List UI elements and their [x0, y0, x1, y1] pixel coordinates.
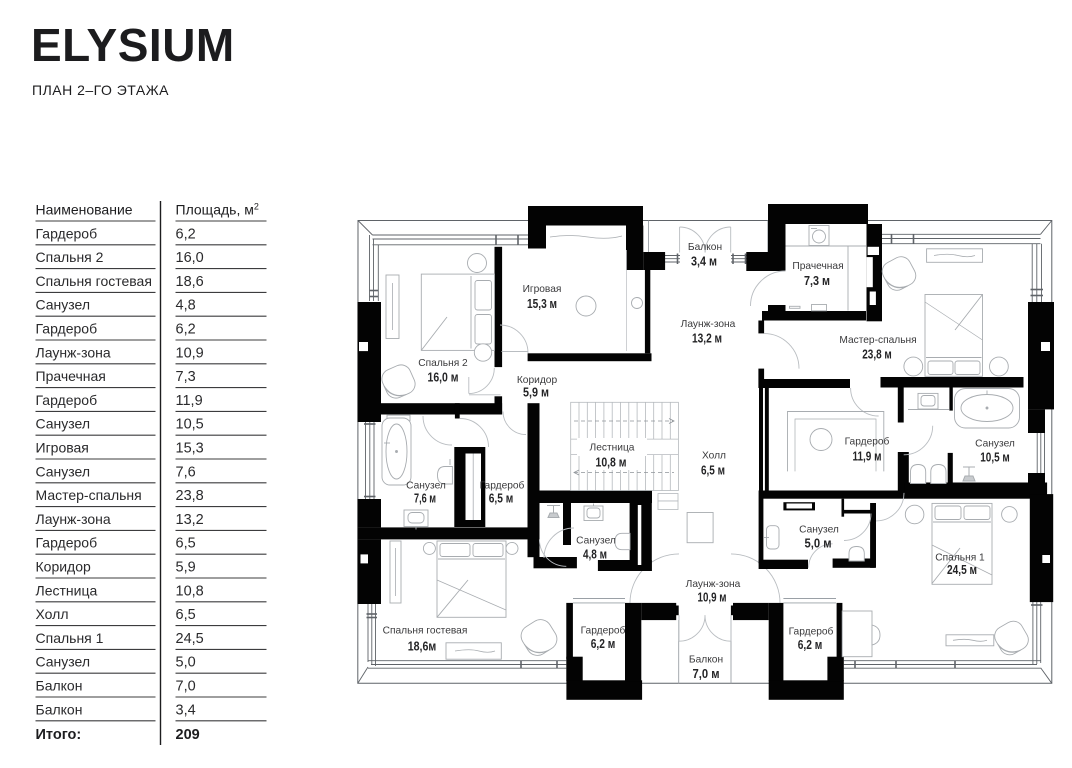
svg-text:Гардероб: Гардероб: [581, 625, 626, 637]
svg-text:Санузел: Санузел: [36, 416, 91, 432]
svg-text:4,8 м: 4,8 м: [583, 547, 607, 562]
svg-text:13,2: 13,2: [176, 512, 204, 528]
svg-text:Лаунж-зона: Лаунж-зона: [681, 319, 736, 330]
svg-text:Балкон: Балкон: [36, 678, 83, 694]
svg-text:209: 209: [176, 727, 200, 743]
svg-text:5,0: 5,0: [176, 655, 196, 671]
svg-text:Игровая: Игровая: [36, 440, 89, 456]
svg-text:Холл: Холл: [702, 451, 726, 462]
svg-text:23,8 м: 23,8 м: [862, 347, 892, 362]
svg-text:24,5: 24,5: [176, 631, 204, 647]
svg-text:5,0 м: 5,0 м: [805, 536, 832, 551]
svg-text:Санузел: Санузел: [36, 297, 91, 313]
svg-text:7,6: 7,6: [176, 464, 196, 480]
svg-text:15,3: 15,3: [176, 441, 204, 457]
svg-text:4,8: 4,8: [176, 298, 196, 314]
svg-text:6,5: 6,5: [176, 607, 196, 623]
svg-text:Спальня гостевая: Спальня гостевая: [383, 626, 468, 637]
svg-text:Спальня гостевая: Спальня гостевая: [36, 273, 152, 289]
svg-text:7,6 м: 7,6 м: [414, 491, 436, 506]
svg-text:7,3 м: 7,3 м: [804, 273, 830, 288]
svg-text:Санузел: Санузел: [975, 439, 1015, 450]
svg-text:6,5 м: 6,5 м: [701, 463, 725, 478]
svg-text:Балкон: Балкон: [36, 701, 83, 717]
svg-text:6,2: 6,2: [176, 226, 196, 242]
svg-text:Лаунж-зона: Лаунж-зона: [686, 579, 741, 590]
svg-text:5,9 м: 5,9 м: [523, 385, 549, 400]
svg-text:10,5: 10,5: [176, 417, 204, 433]
svg-text:6,2: 6,2: [176, 322, 196, 338]
svg-text:Коридор: Коридор: [36, 559, 92, 575]
svg-text:Игровая: Игровая: [523, 284, 562, 295]
svg-text:Прачечная: Прачечная: [792, 261, 843, 272]
svg-text:3,4 м: 3,4 м: [691, 254, 717, 269]
svg-text:16,0: 16,0: [176, 250, 204, 266]
svg-text:23,8: 23,8: [176, 488, 204, 504]
svg-text:Итого:: Итого:: [36, 727, 82, 743]
svg-text:6,2 м: 6,2 м: [798, 637, 823, 652]
svg-text:Балкон: Балкон: [688, 242, 722, 253]
svg-text:Лаунж-зона: Лаунж-зона: [36, 344, 111, 360]
svg-text:Спальня 2: Спальня 2: [418, 358, 468, 369]
svg-text:ELYSIUM: ELYSIUM: [31, 19, 235, 71]
svg-text:Гардероб: Гардероб: [36, 321, 98, 337]
svg-text:Спальня 1: Спальня 1: [36, 630, 104, 646]
svg-text:Лаунж-зона: Лаунж-зона: [36, 511, 111, 527]
svg-text:ПЛАН 2–ГО ЭТАЖА: ПЛАН 2–ГО ЭТАЖА: [32, 82, 169, 98]
svg-text:7,3: 7,3: [176, 369, 196, 385]
svg-text:24,5 м: 24,5 м: [947, 562, 977, 577]
svg-text:11,9: 11,9: [176, 393, 203, 409]
svg-text:Спальня 2: Спальня 2: [36, 249, 104, 265]
svg-text:16,0 м: 16,0 м: [428, 370, 459, 385]
svg-text:18,6: 18,6: [176, 274, 204, 290]
svg-text:10,9 м: 10,9 м: [698, 590, 727, 605]
svg-text:Лестница: Лестница: [36, 582, 98, 598]
svg-text:6,5: 6,5: [176, 536, 196, 552]
svg-text:Наименование: Наименование: [36, 202, 133, 218]
svg-text:7,0 м: 7,0 м: [693, 666, 720, 681]
svg-text:18,6м: 18,6м: [408, 639, 437, 654]
svg-text:13,2 м: 13,2 м: [692, 331, 722, 346]
svg-text:6,2 м: 6,2 м: [591, 636, 616, 651]
svg-text:Гардероб: Гардероб: [845, 436, 890, 448]
svg-text:Санузел: Санузел: [799, 525, 839, 536]
svg-text:3,4: 3,4: [176, 702, 196, 718]
svg-text:Мастер-спальня: Мастер-спальня: [36, 487, 142, 503]
svg-text:Гардероб: Гардероб: [36, 225, 98, 241]
svg-text:Гардероб: Гардероб: [789, 626, 834, 638]
svg-text:Холл: Холл: [36, 606, 69, 622]
svg-text:15,3 м: 15,3 м: [527, 296, 557, 311]
svg-text:6,5 м: 6,5 м: [489, 491, 514, 506]
svg-text:7,0: 7,0: [176, 679, 196, 695]
svg-text:Гардероб: Гардероб: [36, 392, 98, 408]
svg-text:Площадь, м2: Площадь, м2: [176, 202, 259, 218]
svg-text:10,9: 10,9: [176, 345, 204, 361]
svg-text:Гардероб: Гардероб: [36, 535, 98, 551]
svg-text:Мастер-спальня: Мастер-спальня: [839, 335, 916, 346]
svg-text:Санузел: Санузел: [576, 536, 616, 547]
svg-text:Прачечная: Прачечная: [36, 368, 106, 384]
svg-text:Санузел: Санузел: [36, 654, 91, 670]
svg-text:5,9: 5,9: [176, 560, 196, 576]
svg-text:10,8 м: 10,8 м: [596, 455, 627, 470]
svg-text:11,9 м: 11,9 м: [853, 449, 882, 464]
svg-text:Лестница: Лестница: [590, 443, 635, 454]
svg-text:Санузел: Санузел: [36, 463, 91, 479]
svg-text:10,8: 10,8: [176, 583, 204, 599]
svg-text:10,5 м: 10,5 м: [980, 450, 1010, 465]
svg-text:Балкон: Балкон: [689, 655, 723, 666]
